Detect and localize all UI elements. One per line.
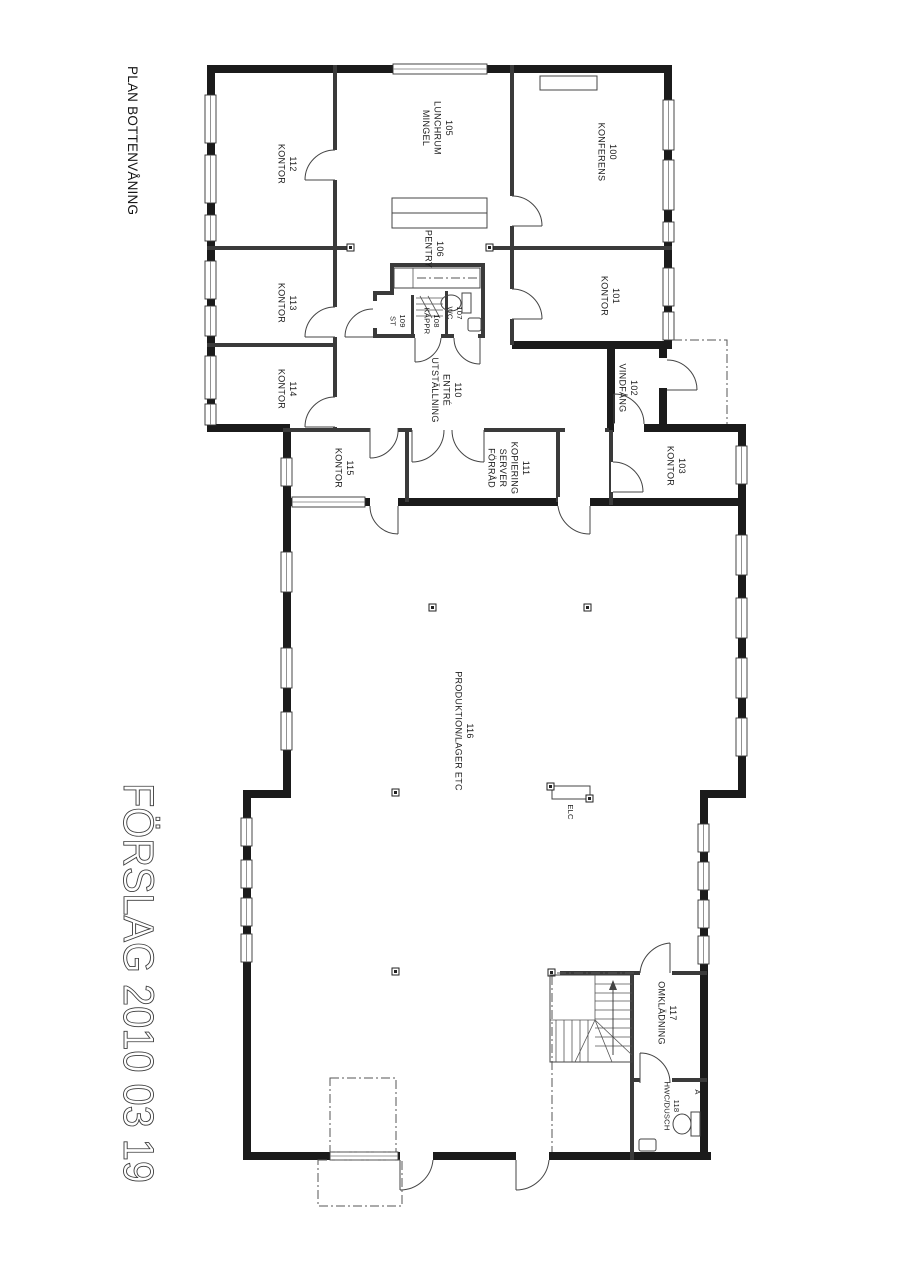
- room-label-101: 101KONTOR: [599, 276, 621, 316]
- stair-direction-arrow: [609, 980, 617, 1055]
- labels: PLAN BOTTENVÅNING FÖRSLAG 2010 03 19 100…: [114, 66, 702, 1183]
- room-label-117: 117OMKLÄDNING: [656, 981, 678, 1045]
- room-label-114: 114KONTOR: [276, 369, 298, 409]
- room-label-106: 106PENTRY: [423, 230, 445, 268]
- section-marker-a: A: [693, 1089, 702, 1095]
- staircase: [550, 975, 632, 1062]
- drawing-stamp: FÖRSLAG 2010 03 19: [114, 783, 162, 1183]
- room-label-111: 111KOPIERINGSERVERFÖRRÅD: [486, 442, 531, 495]
- room-label-112: 112KONTOR: [276, 144, 298, 184]
- sink-icon: [639, 1139, 656, 1151]
- fixtures: [392, 76, 700, 1151]
- room-label-103: 103KONTOR: [665, 446, 687, 486]
- floor-plan-drawing: PLAN BOTTENVÅNING FÖRSLAG 2010 03 19 100…: [0, 0, 900, 1273]
- room-label-102: 102VINDFÅNG: [617, 364, 639, 413]
- columns: [347, 244, 591, 976]
- elc-label: ELC: [566, 804, 575, 820]
- sink-icon: [468, 318, 481, 331]
- room-label-113: 113KONTOR: [276, 283, 298, 323]
- room-label-109: 109ST: [388, 314, 407, 327]
- room-label-110: 110ENTRÉUTSTÄLLNING: [430, 357, 463, 422]
- room-label-100: 100KONFERENS: [596, 123, 618, 182]
- room-label-105: 105LUNCHRUMMINGEL: [421, 101, 454, 155]
- drawing-title: PLAN BOTTENVÅNING: [125, 66, 140, 216]
- elc-cabinet: [547, 783, 593, 802]
- pentry-island: [392, 213, 487, 228]
- loading-zone-outside: [318, 1160, 402, 1206]
- room-label-107: 107WC: [445, 306, 464, 319]
- toilet-icon: [673, 1112, 700, 1136]
- room-label-108: 108KAPPR: [422, 308, 441, 335]
- pentry-island: [392, 198, 487, 213]
- room-label-115: 115KONTOR: [333, 448, 355, 488]
- room-label-116: 116PRODUKTION/LAGER ETC: [453, 671, 475, 791]
- loading-zone-inside: [330, 1078, 396, 1152]
- floor-plan-page: PLAN BOTTENVÅNING FÖRSLAG 2010 03 19 100…: [0, 0, 900, 1273]
- conference-cabinet: [540, 76, 597, 90]
- room-label-118: 118HWC/DUSCH: [662, 1081, 681, 1130]
- doors: [305, 150, 697, 1190]
